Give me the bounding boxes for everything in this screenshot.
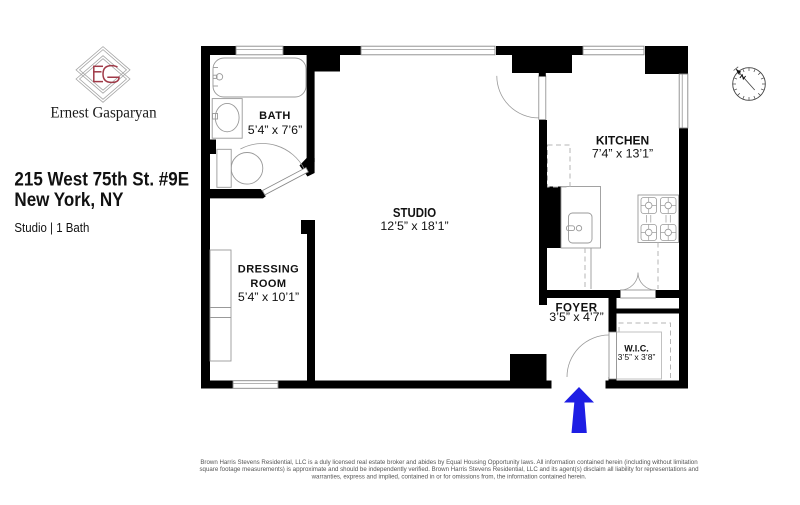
svg-text:Studio | 1 Bath: Studio | 1 Bath xyxy=(14,220,89,235)
svg-text:5’4” x 7’6”: 5’4” x 7’6” xyxy=(248,123,302,137)
svg-text:7’4” x 13’1”: 7’4” x 13’1” xyxy=(592,146,653,160)
svg-text:12’5” x 18’1”: 12’5” x 18’1” xyxy=(380,219,448,233)
svg-text:215 West 75th St. #9E: 215 West 75th St. #9E xyxy=(14,167,189,190)
svg-text:5’4” x 10’1”: 5’4” x 10’1” xyxy=(238,290,299,304)
svg-text:3’5” x 3’8”: 3’5” x 3’8” xyxy=(618,352,656,362)
svg-text:Ernest Gasparyan: Ernest Gasparyan xyxy=(50,104,156,122)
svg-text:New York, NY: New York, NY xyxy=(14,188,124,211)
svg-text:STUDIO: STUDIO xyxy=(393,205,436,220)
svg-text:KITCHEN: KITCHEN xyxy=(596,133,649,147)
svg-text:ROOM: ROOM xyxy=(250,278,286,290)
svg-text:DRESSING: DRESSING xyxy=(238,264,299,276)
svg-text:Brown Harris Stevens Residenti: Brown Harris Stevens Residential, LLC is… xyxy=(200,459,698,466)
svg-text:square footage measurements) i: square footage measurements) is approxim… xyxy=(199,466,699,473)
svg-text:3’5” x 4’7”: 3’5” x 4’7” xyxy=(549,310,603,324)
svg-text:BATH: BATH xyxy=(259,110,291,122)
svg-text:warranties, express and implie: warranties, express and implied, contain… xyxy=(311,473,587,480)
